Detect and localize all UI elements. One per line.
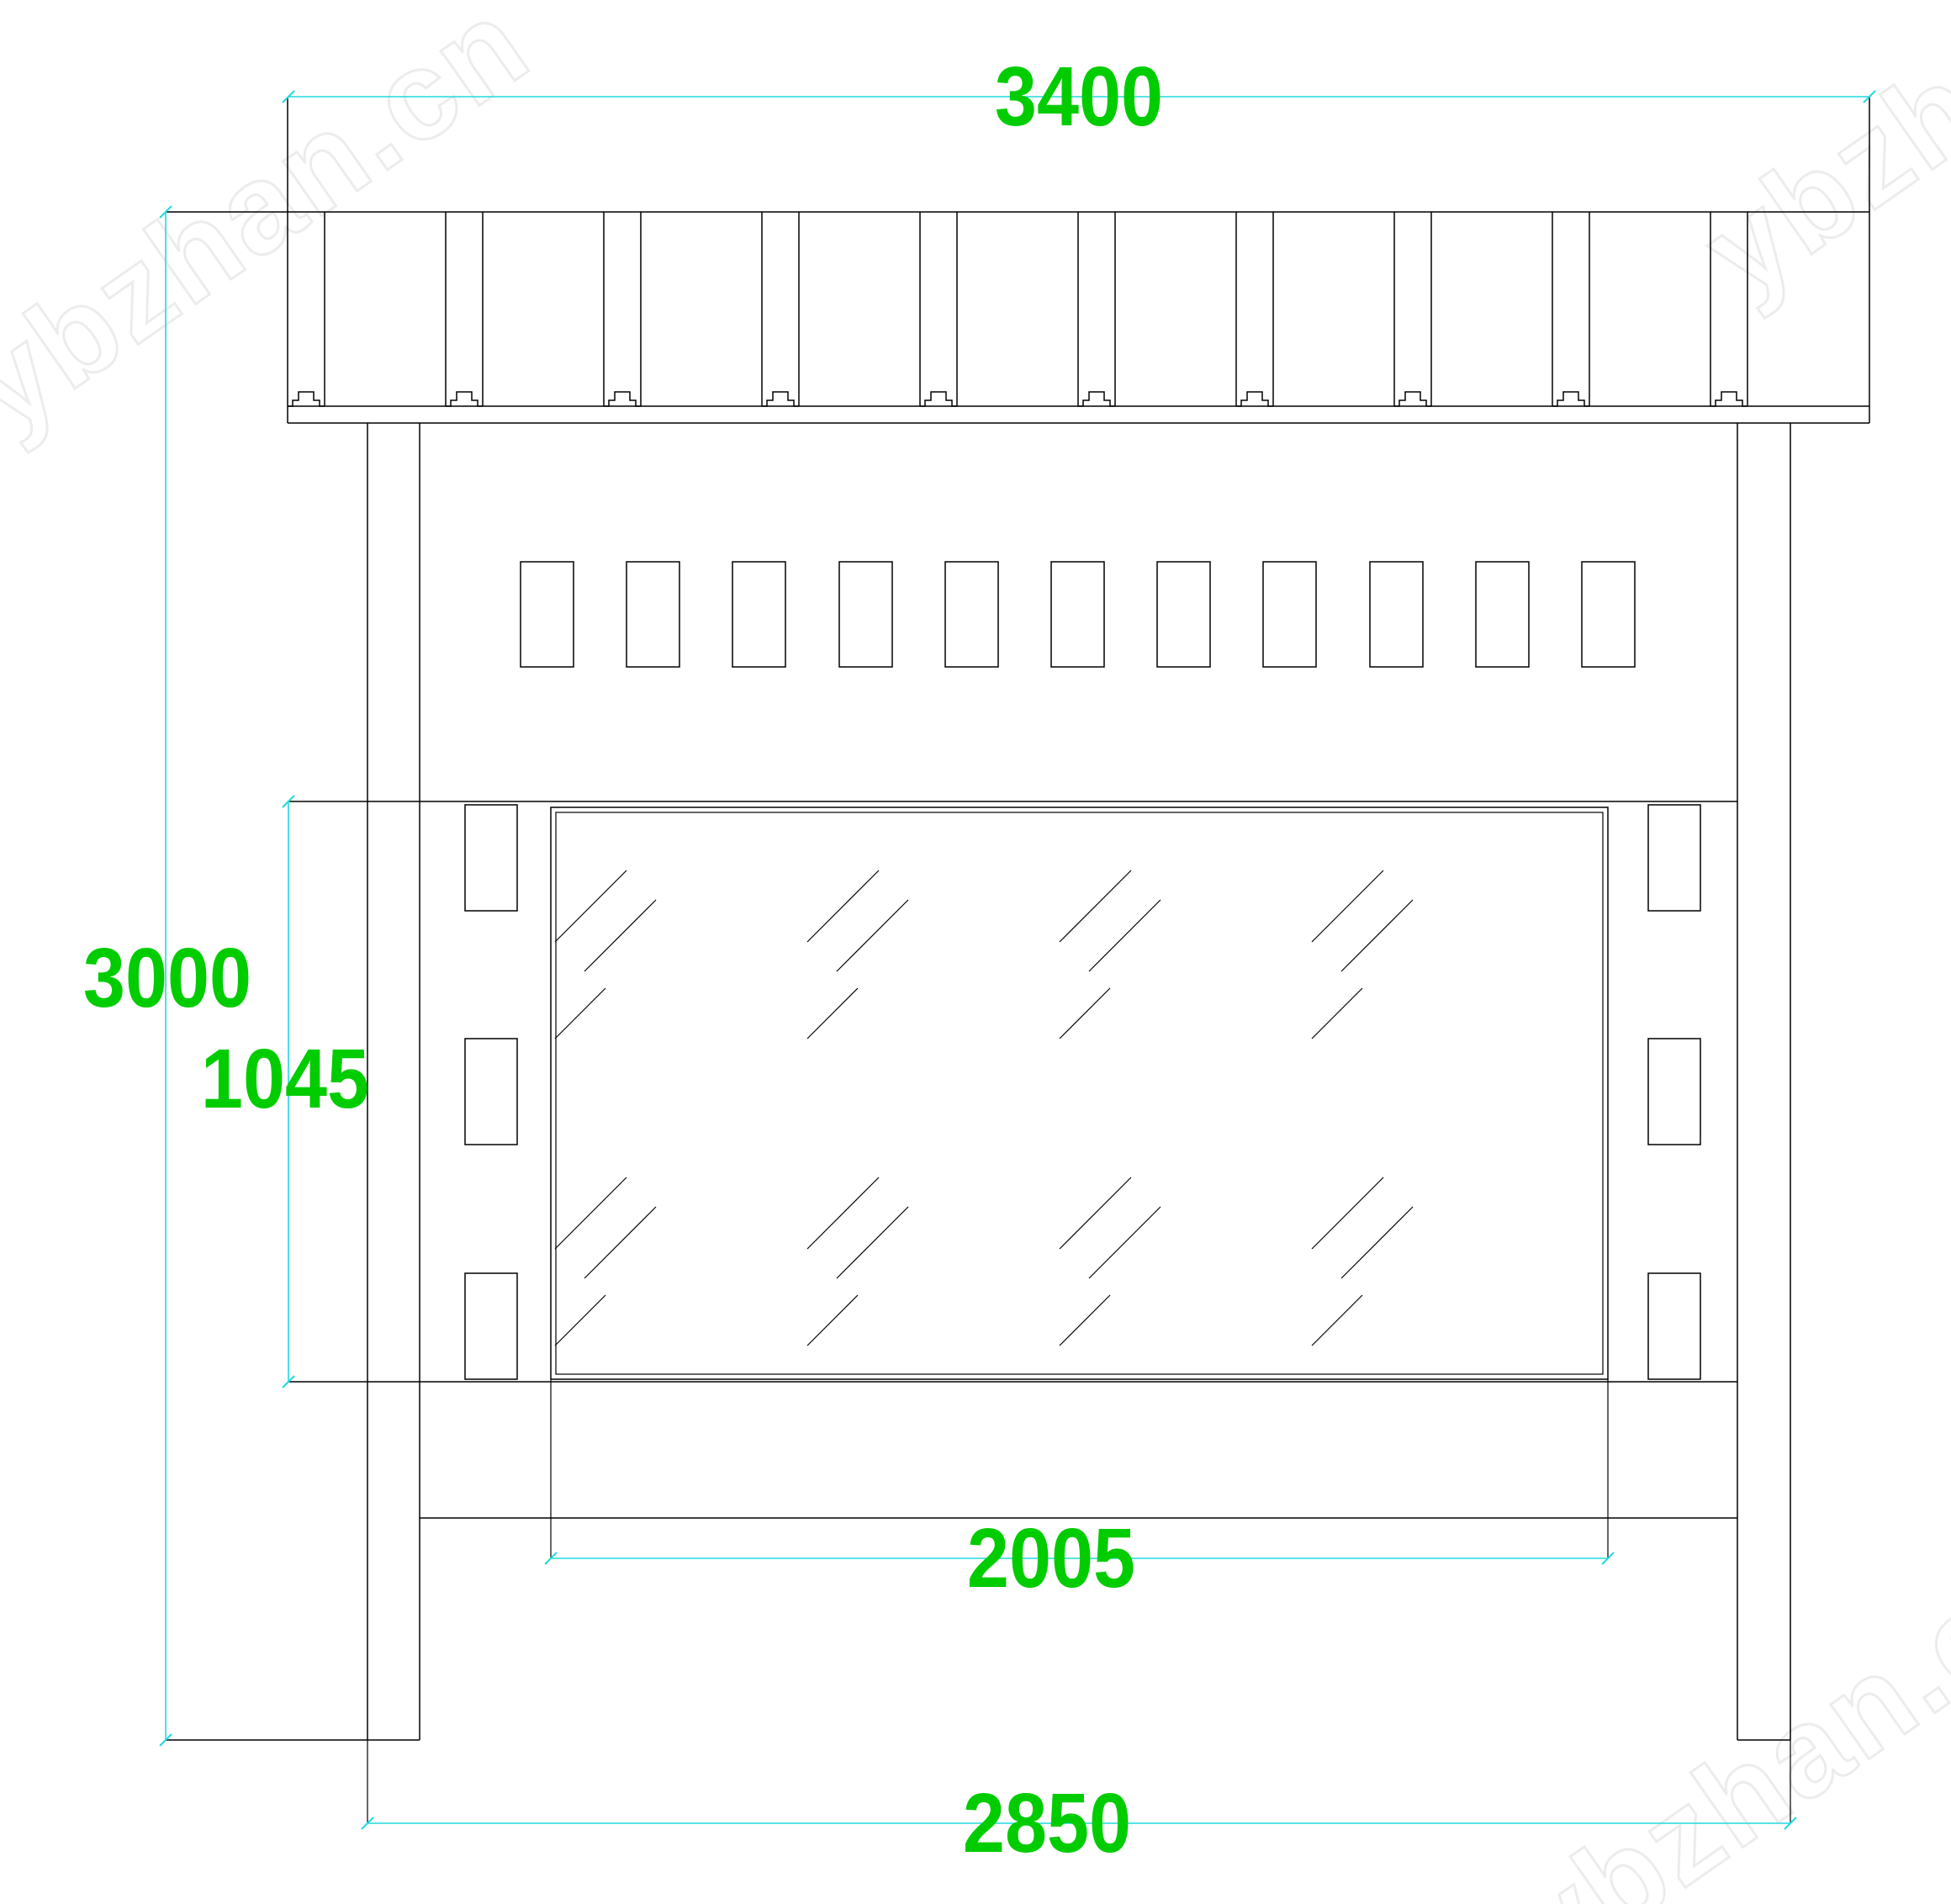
roof-band	[167, 97, 1869, 423]
dim-text-overall-width: 3400	[995, 55, 1163, 139]
cad-linework	[0, 0, 1951, 1904]
glass-hatching	[555, 870, 1413, 1346]
roof-band-ribs	[288, 212, 1747, 406]
left-post	[367, 423, 420, 1740]
dim-text-panel-height: 1045	[201, 1037, 369, 1121]
glass-inner-frame	[556, 812, 1603, 1374]
side-blocks	[465, 805, 1700, 1379]
wall-frame	[288, 801, 1737, 1518]
glass-outer-frame	[551, 807, 1608, 1379]
right-post	[1737, 423, 1790, 1740]
dim-text-overall-height: 3000	[83, 936, 251, 1020]
dim-text-base-width: 2850	[963, 1781, 1131, 1865]
roof-band-outline	[167, 97, 1869, 423]
cad-drawing-page: ybzhan.cn ybzhan.cn ybzhan.cn	[0, 0, 1951, 1904]
dim-text-glass-width: 2005	[967, 1516, 1135, 1600]
roof-band-bumps	[288, 392, 1747, 406]
glass-panel	[551, 807, 1608, 1379]
vent-openings	[521, 562, 1635, 667]
